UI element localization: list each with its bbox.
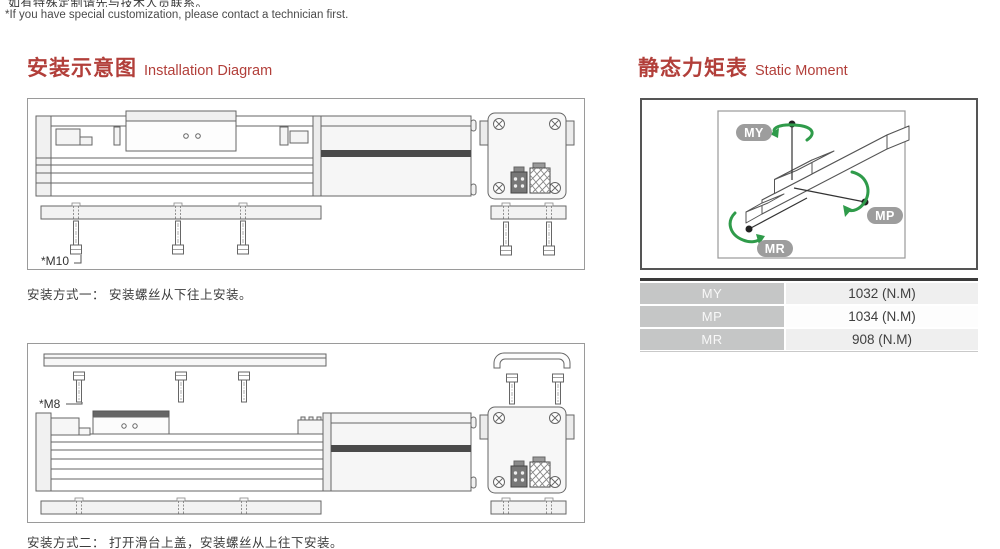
installation-diagram-1-svg: *M10 [28,99,584,269]
page: 如有特殊定制请先与技术人员联系。 *If you have special cu… [0,0,1000,549]
static-moment-svg: MY MP MR [642,100,976,268]
installation-diagram-1-box: *M10 [27,98,585,270]
static-moment-section-title: 静态力矩表Static Moment [638,52,848,82]
static-moment-title-zh: 静态力矩表 [638,57,748,80]
rail-side-view [36,111,476,196]
table-top-bar [640,278,978,281]
static-moment-diagram-box: MY MP MR [640,98,978,270]
static-moment-table: MY 1032 (N.M) MP 1034 (N.M) MR 908 (N.M) [640,278,978,352]
top-note-chinese: 如有特殊定制请先与技术人员联系。 [8,0,428,7]
m10-screw-label: *M10 [41,254,69,268]
moment-label-cell: MP [640,306,784,327]
carriage-cover-clamp [494,353,570,368]
installation-diagram-2-box: *M8 [27,343,585,523]
moment-value-cell: 1034 (N.M) [786,306,978,327]
motor-body [321,116,476,196]
motor-body-2 [331,413,476,491]
static-moment-title-en: Static Moment [755,63,848,79]
removed-top-cover [44,354,326,366]
end-view-plate [480,113,574,199]
installation-section-title: 安装示意图Installation Diagram [27,52,272,82]
installation-method2-caption: 安装方式二： 打开滑台上盖，安装螺丝从上往下安装。 [27,532,343,549]
installation-title-en: Installation Diagram [144,63,272,79]
top-note-english: *If you have special customization, plea… [5,9,348,21]
slider-carriage [126,111,236,151]
m10-leader-line [74,255,81,263]
rail-side-view-open [36,411,476,491]
screws-from-below [71,221,555,255]
m8-screw-label: *M8 [39,397,61,411]
moment-value-cell: 908 (N.M) [786,329,978,350]
mounting-plate-bottom [41,203,566,219]
mr-label: MR [765,242,785,256]
moment-label-cell: MR [640,329,784,350]
my-label: MY [744,126,764,140]
clamp-screws [507,374,564,404]
screws-from-above [74,372,250,402]
end-view-plate-2 [480,407,574,493]
moment-value-cell: 1032 (N.M) [786,283,978,304]
slider-carriage-open [93,411,169,434]
installation-title-zh: 安装示意图 [27,57,137,80]
moment-label-cell: MY [640,283,784,304]
base-plate-bottom [41,498,566,514]
installation-method1-caption: 安装方式一： 安装螺丝从下往上安装。 [27,284,252,303]
mp-label: MP [875,209,895,223]
installation-diagram-2-svg: *M8 [28,344,584,522]
